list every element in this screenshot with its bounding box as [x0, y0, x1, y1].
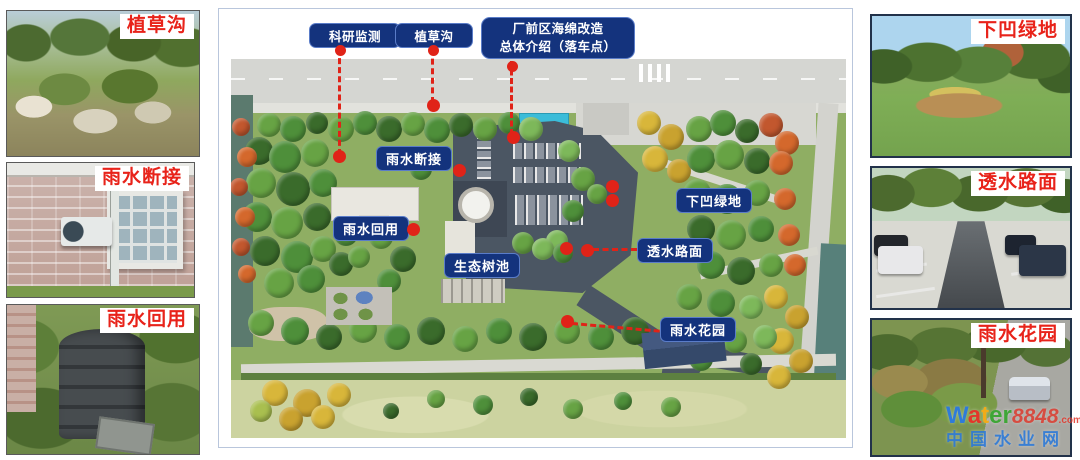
- photo-label-downspout: 雨水断接: [95, 166, 189, 191]
- tree-blob: [390, 246, 416, 272]
- callout-overview-line2: 总体介绍（落车点）: [492, 38, 624, 56]
- map-label-downspout-disconnect: 雨水断接: [376, 146, 452, 171]
- tree-blob: [714, 140, 744, 170]
- tree-blob: [297, 265, 325, 293]
- photo-sunken-green: 下凹绿地: [870, 14, 1072, 158]
- tree-blob: [316, 324, 342, 350]
- tree-blob: [250, 236, 280, 266]
- leader-line-pavement: [593, 248, 637, 251]
- round-tank-structure: [458, 187, 494, 223]
- brick-wall: [7, 305, 36, 412]
- map-label-sunken-green: 下凹绿地: [676, 188, 752, 213]
- asphalt-road: [937, 221, 1004, 308]
- grass-strip: [7, 286, 194, 297]
- tree-blob: [384, 324, 410, 350]
- watermark-site-name: 中国水业网: [946, 431, 1080, 448]
- tree-blob: [232, 118, 250, 136]
- tree-blob: [784, 254, 806, 276]
- tree-blob: [753, 325, 777, 349]
- tree-blob: [512, 232, 534, 254]
- tree-blob: [306, 112, 328, 134]
- callout-overview-line1: 厂前区海绵改造: [492, 20, 624, 38]
- tree-blob: [376, 116, 402, 142]
- callout-overview-dropoff: 厂前区海绵改造 总体介绍（落车点）: [481, 17, 635, 59]
- tree-blob: [257, 113, 281, 137]
- photo-label-grass-swale: 植草沟: [120, 14, 194, 39]
- tree-blob: [759, 253, 783, 277]
- tree-blob: [271, 207, 303, 239]
- tree-blob: [748, 216, 774, 242]
- tree-blob: [676, 284, 702, 310]
- tree-blob: [661, 397, 681, 417]
- tree-blob: [303, 203, 331, 231]
- tree-blob: [486, 318, 512, 344]
- tree-blob: [687, 145, 715, 173]
- tree-blob: [348, 246, 370, 268]
- watermark-tld: .com: [1059, 415, 1080, 426]
- leader-line-swale: [431, 49, 434, 103]
- tree-blob: [716, 220, 746, 250]
- tree-blob: [789, 349, 813, 373]
- tree-blob: [473, 117, 497, 141]
- tree-blob: [587, 184, 607, 204]
- tree-blob: [427, 390, 445, 408]
- marker-dot: [560, 242, 573, 255]
- tree-blob: [520, 388, 538, 406]
- tree-blob: [727, 257, 755, 285]
- tree-blob: [250, 400, 272, 422]
- tree-blob: [246, 168, 276, 198]
- photo-label-pavement: 透水路面: [971, 171, 1065, 196]
- tree-blob: [281, 317, 309, 345]
- marker-dot: [606, 194, 619, 207]
- marker-dot: [427, 99, 440, 112]
- photo-downspout-disconnect: 雨水断接: [6, 162, 195, 298]
- tree-blob: [353, 111, 377, 135]
- tree-blob: [498, 112, 520, 134]
- tree-blob: [238, 265, 256, 283]
- tree-blob: [311, 405, 335, 429]
- aerial-photo: [231, 59, 846, 438]
- tree-blob: [532, 238, 554, 260]
- tree-blob: [637, 111, 661, 135]
- tree-blob: [232, 238, 250, 256]
- tree-blob: [519, 117, 543, 141]
- photo-label-rain-garden: 雨水花园: [971, 323, 1065, 348]
- watermark-brand: Water8848.com: [946, 404, 1080, 428]
- info-sign: [95, 416, 155, 455]
- building-gable: [441, 279, 505, 303]
- car-silver: [1009, 377, 1051, 400]
- car-navy: [1019, 245, 1067, 276]
- photo-permeable-pavement: 透水路面: [870, 166, 1072, 310]
- tree-blob: [231, 178, 248, 196]
- tree-blob: [401, 112, 425, 136]
- map-label-rain-garden: 雨水花园: [660, 317, 736, 342]
- marker-dot: [335, 45, 346, 56]
- tree-blob: [735, 119, 759, 143]
- marker-dot: [333, 150, 346, 163]
- marker-dot: [407, 223, 420, 236]
- tree-blob: [767, 365, 791, 389]
- marker-dot: [428, 45, 439, 56]
- car-white: [878, 246, 924, 274]
- tree-blob: [744, 148, 770, 174]
- photo-label-sunken: 下凹绿地: [971, 19, 1065, 44]
- tree-blob: [707, 289, 735, 317]
- tree-blob: [562, 200, 584, 222]
- tree-layer: [231, 59, 846, 438]
- tree-blob: [473, 395, 493, 415]
- map-label-rainwater-reuse: 雨水回用: [333, 216, 409, 241]
- tree-blob: [614, 392, 632, 410]
- map-label-eco-tree-pool: 生态树池: [444, 253, 520, 278]
- leader-line-overview: [510, 61, 513, 135]
- photo-rainwater-reuse: 雨水回用: [6, 304, 200, 455]
- marker-dot: [581, 244, 594, 257]
- marker-dot: [606, 180, 619, 193]
- tree-blob: [519, 323, 547, 351]
- tree-blob: [774, 188, 796, 210]
- tree-blob: [658, 124, 684, 150]
- marker-dot: [453, 164, 466, 177]
- marker-dot: [507, 61, 518, 72]
- tree-blob: [417, 317, 445, 345]
- tree-blob: [269, 141, 301, 173]
- tree-blob: [449, 113, 473, 137]
- tree-blob: [424, 117, 450, 143]
- tree-blob: [558, 140, 580, 162]
- callout-research-monitoring: 科研监测: [309, 23, 401, 48]
- tree-blob: [327, 383, 351, 407]
- tree-blob: [383, 403, 399, 419]
- tree-blob: [710, 110, 736, 136]
- photo-grass-swale: 植草沟: [6, 10, 200, 157]
- aerial-map-panel: 科研监测 植草沟 厂前区海绵改造 总体介绍（落车点） 雨水断接 雨水回用 生态树…: [218, 8, 853, 448]
- tree-blob: [740, 353, 762, 375]
- ac-unit: [61, 217, 111, 246]
- tree-blob: [785, 305, 809, 329]
- map-label-permeable-pavement: 透水路面: [637, 238, 713, 263]
- watermark: Water8848.com 中国水业网: [946, 404, 1080, 448]
- tree-blob: [276, 172, 310, 206]
- tree-blob: [686, 116, 712, 142]
- marker-dot: [561, 315, 574, 328]
- leader-line-research: [338, 49, 341, 155]
- tree-blob: [328, 116, 354, 142]
- tree-blob: [301, 139, 329, 167]
- tree-blob: [279, 407, 303, 431]
- sponge-city-infographic: 植草沟 雨水断接 雨水回用 下凹绿地 透水路面 雨水花园: [0, 0, 1080, 460]
- tree-blob: [769, 151, 793, 175]
- tree-blob: [280, 116, 306, 142]
- green-roof-building: [326, 287, 392, 325]
- tree-blob: [235, 207, 255, 227]
- tree-blob: [563, 399, 583, 419]
- marker-dot: [507, 131, 520, 144]
- tree-blob: [642, 146, 668, 172]
- tree-blob: [248, 310, 274, 336]
- tree-blob: [778, 224, 800, 246]
- tree-blob: [739, 295, 763, 319]
- photo-label-reuse: 雨水回用: [100, 308, 194, 333]
- tree-blob: [452, 326, 478, 352]
- parking-stall-line: [876, 287, 935, 298]
- tree-blob: [237, 147, 257, 167]
- watermark-number: 8848: [1012, 405, 1059, 428]
- tree-blob: [264, 268, 294, 298]
- watermark-brand-letters: Water: [946, 410, 1012, 427]
- tree-blob: [764, 285, 788, 309]
